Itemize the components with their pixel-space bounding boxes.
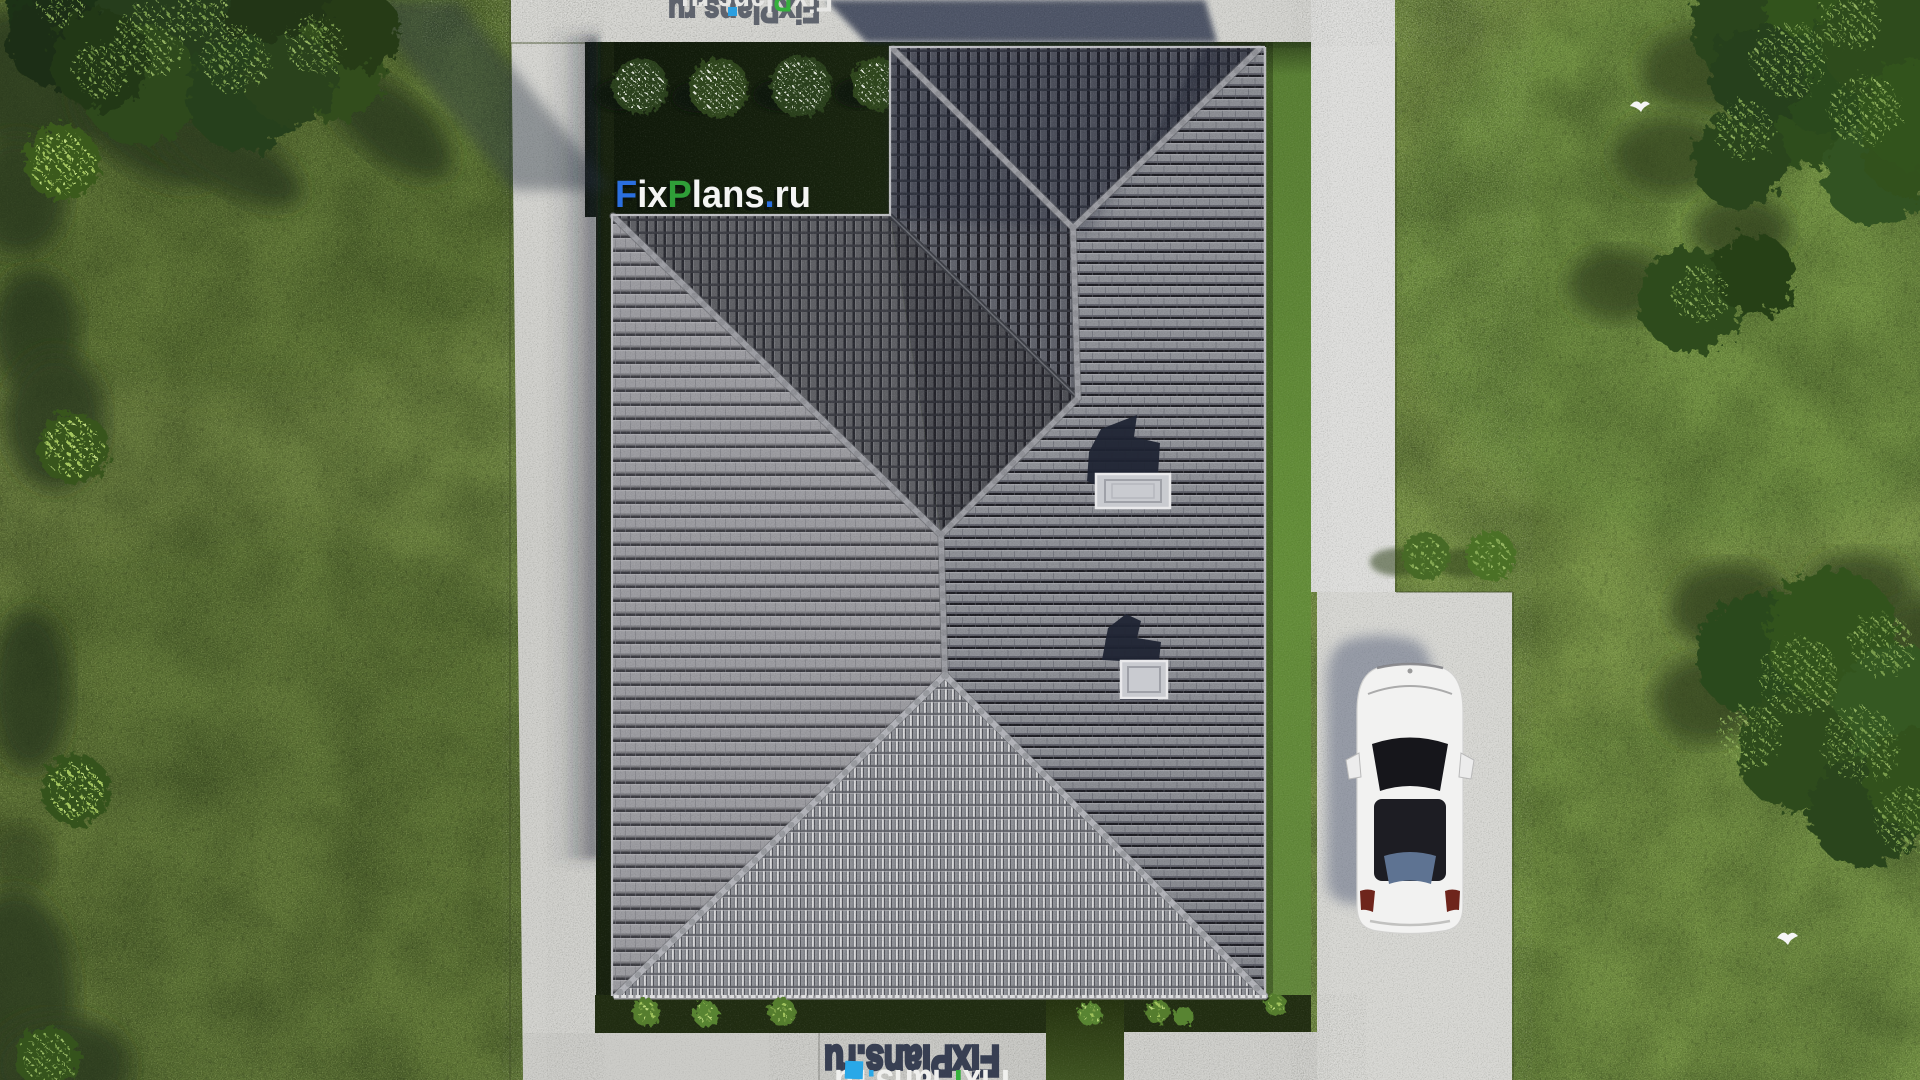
svg-text:FixPlans.ru: FixPlans.ru	[681, 0, 833, 18]
svg-text:FixPlans.ru: FixPlans.ru	[615, 174, 811, 216]
